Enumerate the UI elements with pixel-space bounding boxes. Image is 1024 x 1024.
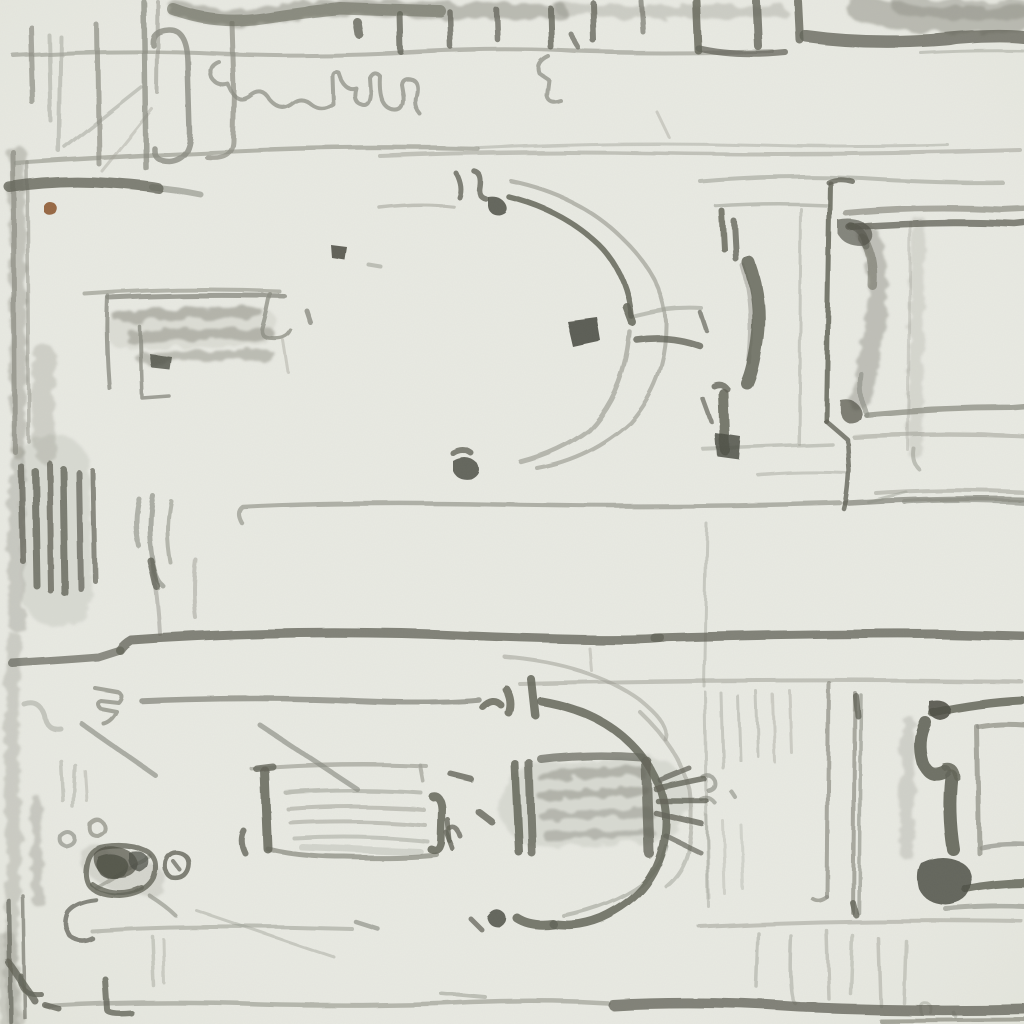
paper-grain [0, 0, 1024, 1024]
sketch-canvas [0, 0, 1024, 1024]
artwork-scan [0, 0, 1024, 1024]
